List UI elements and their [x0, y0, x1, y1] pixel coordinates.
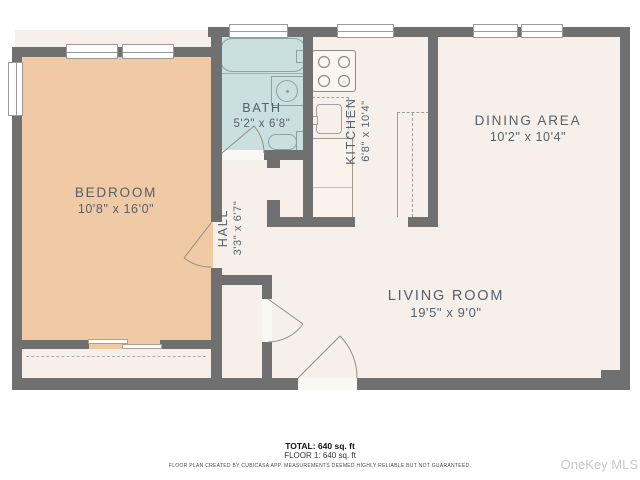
room-name: BATH: [212, 101, 312, 117]
window: [122, 44, 174, 59]
hall-dimensions: 3'3" x 6'7": [232, 183, 246, 273]
total-area-text: TOTAL: 640 sq. ft: [0, 441, 640, 451]
kitchen-sink-icon: [316, 104, 342, 134]
entry-door-threshold: [298, 378, 357, 390]
window-mullion: [338, 31, 393, 32]
bath-door-threshold: [222, 150, 264, 160]
window: [473, 24, 518, 38]
living-room-label: LIVING ROOM 19'5" x 9'0": [371, 287, 521, 321]
closet-rail-line: [26, 356, 206, 358]
floor-plan: BEDROOM 10'8" x 16'0" BATH 5'2" x 6'8" H…: [0, 0, 640, 480]
counter-divider-line: [313, 187, 352, 188]
bedroom-label: BEDROOM 10'8" x 16'0": [41, 185, 191, 218]
wall: [601, 370, 628, 380]
window: [521, 24, 563, 38]
window-mullion: [474, 31, 517, 32]
bath-dimensions: 5'2" x 6'8": [212, 117, 312, 131]
sliding-door-panel: [122, 344, 162, 349]
window-mullion: [16, 63, 17, 115]
closet-door-threshold: [262, 299, 272, 342]
kitchen-label: KITCHEN 6'8" x 10'4": [344, 81, 394, 181]
wall: [211, 150, 222, 160]
room-name: BEDROOM: [41, 185, 191, 202]
hall-label: HALL 3'3" x 6'7": [216, 183, 266, 273]
counter-dashed-line: [412, 113, 414, 217]
pass-through-counter: [397, 112, 429, 217]
room-name: KITCHEN: [344, 81, 360, 181]
bathtub-icon: [220, 38, 306, 72]
window-mullion: [522, 31, 562, 32]
bedroom-dimensions: 10'8" x 16'0": [41, 202, 191, 218]
bath-label: BATH 5'2" x 6'8": [212, 101, 312, 131]
room-name: LIVING ROOM: [371, 287, 521, 305]
kitchen-dimensions: 6'8" x 10'4": [360, 81, 374, 181]
dining-area-label: DINING AREA 10'2" x 10'4": [453, 113, 603, 146]
wall: [428, 37, 438, 227]
wall: [262, 275, 272, 299]
wall: [262, 342, 272, 378]
window: [66, 44, 118, 59]
wall: [12, 340, 89, 349]
wall: [620, 27, 630, 390]
toilet-icon: [268, 134, 297, 150]
tub-deck-line: [220, 73, 307, 74]
window-mullion: [230, 31, 287, 32]
wall: [303, 37, 313, 227]
wall: [267, 217, 355, 227]
sink-drain-dot: [286, 90, 289, 93]
window: [337, 24, 394, 38]
window-mullion: [67, 52, 117, 53]
window-mullion: [123, 52, 173, 53]
room-name: HALL: [216, 183, 232, 273]
window: [8, 62, 23, 116]
wall: [267, 160, 280, 168]
wall: [267, 200, 280, 217]
window: [229, 24, 288, 38]
room-name: DINING AREA: [453, 113, 603, 130]
watermark-text: OneKey MLS: [538, 457, 638, 472]
living-dimensions: 19'5" x 9'0": [371, 305, 521, 321]
wall: [160, 340, 222, 349]
dining-dimensions: 10'2" x 10'4": [453, 130, 603, 146]
